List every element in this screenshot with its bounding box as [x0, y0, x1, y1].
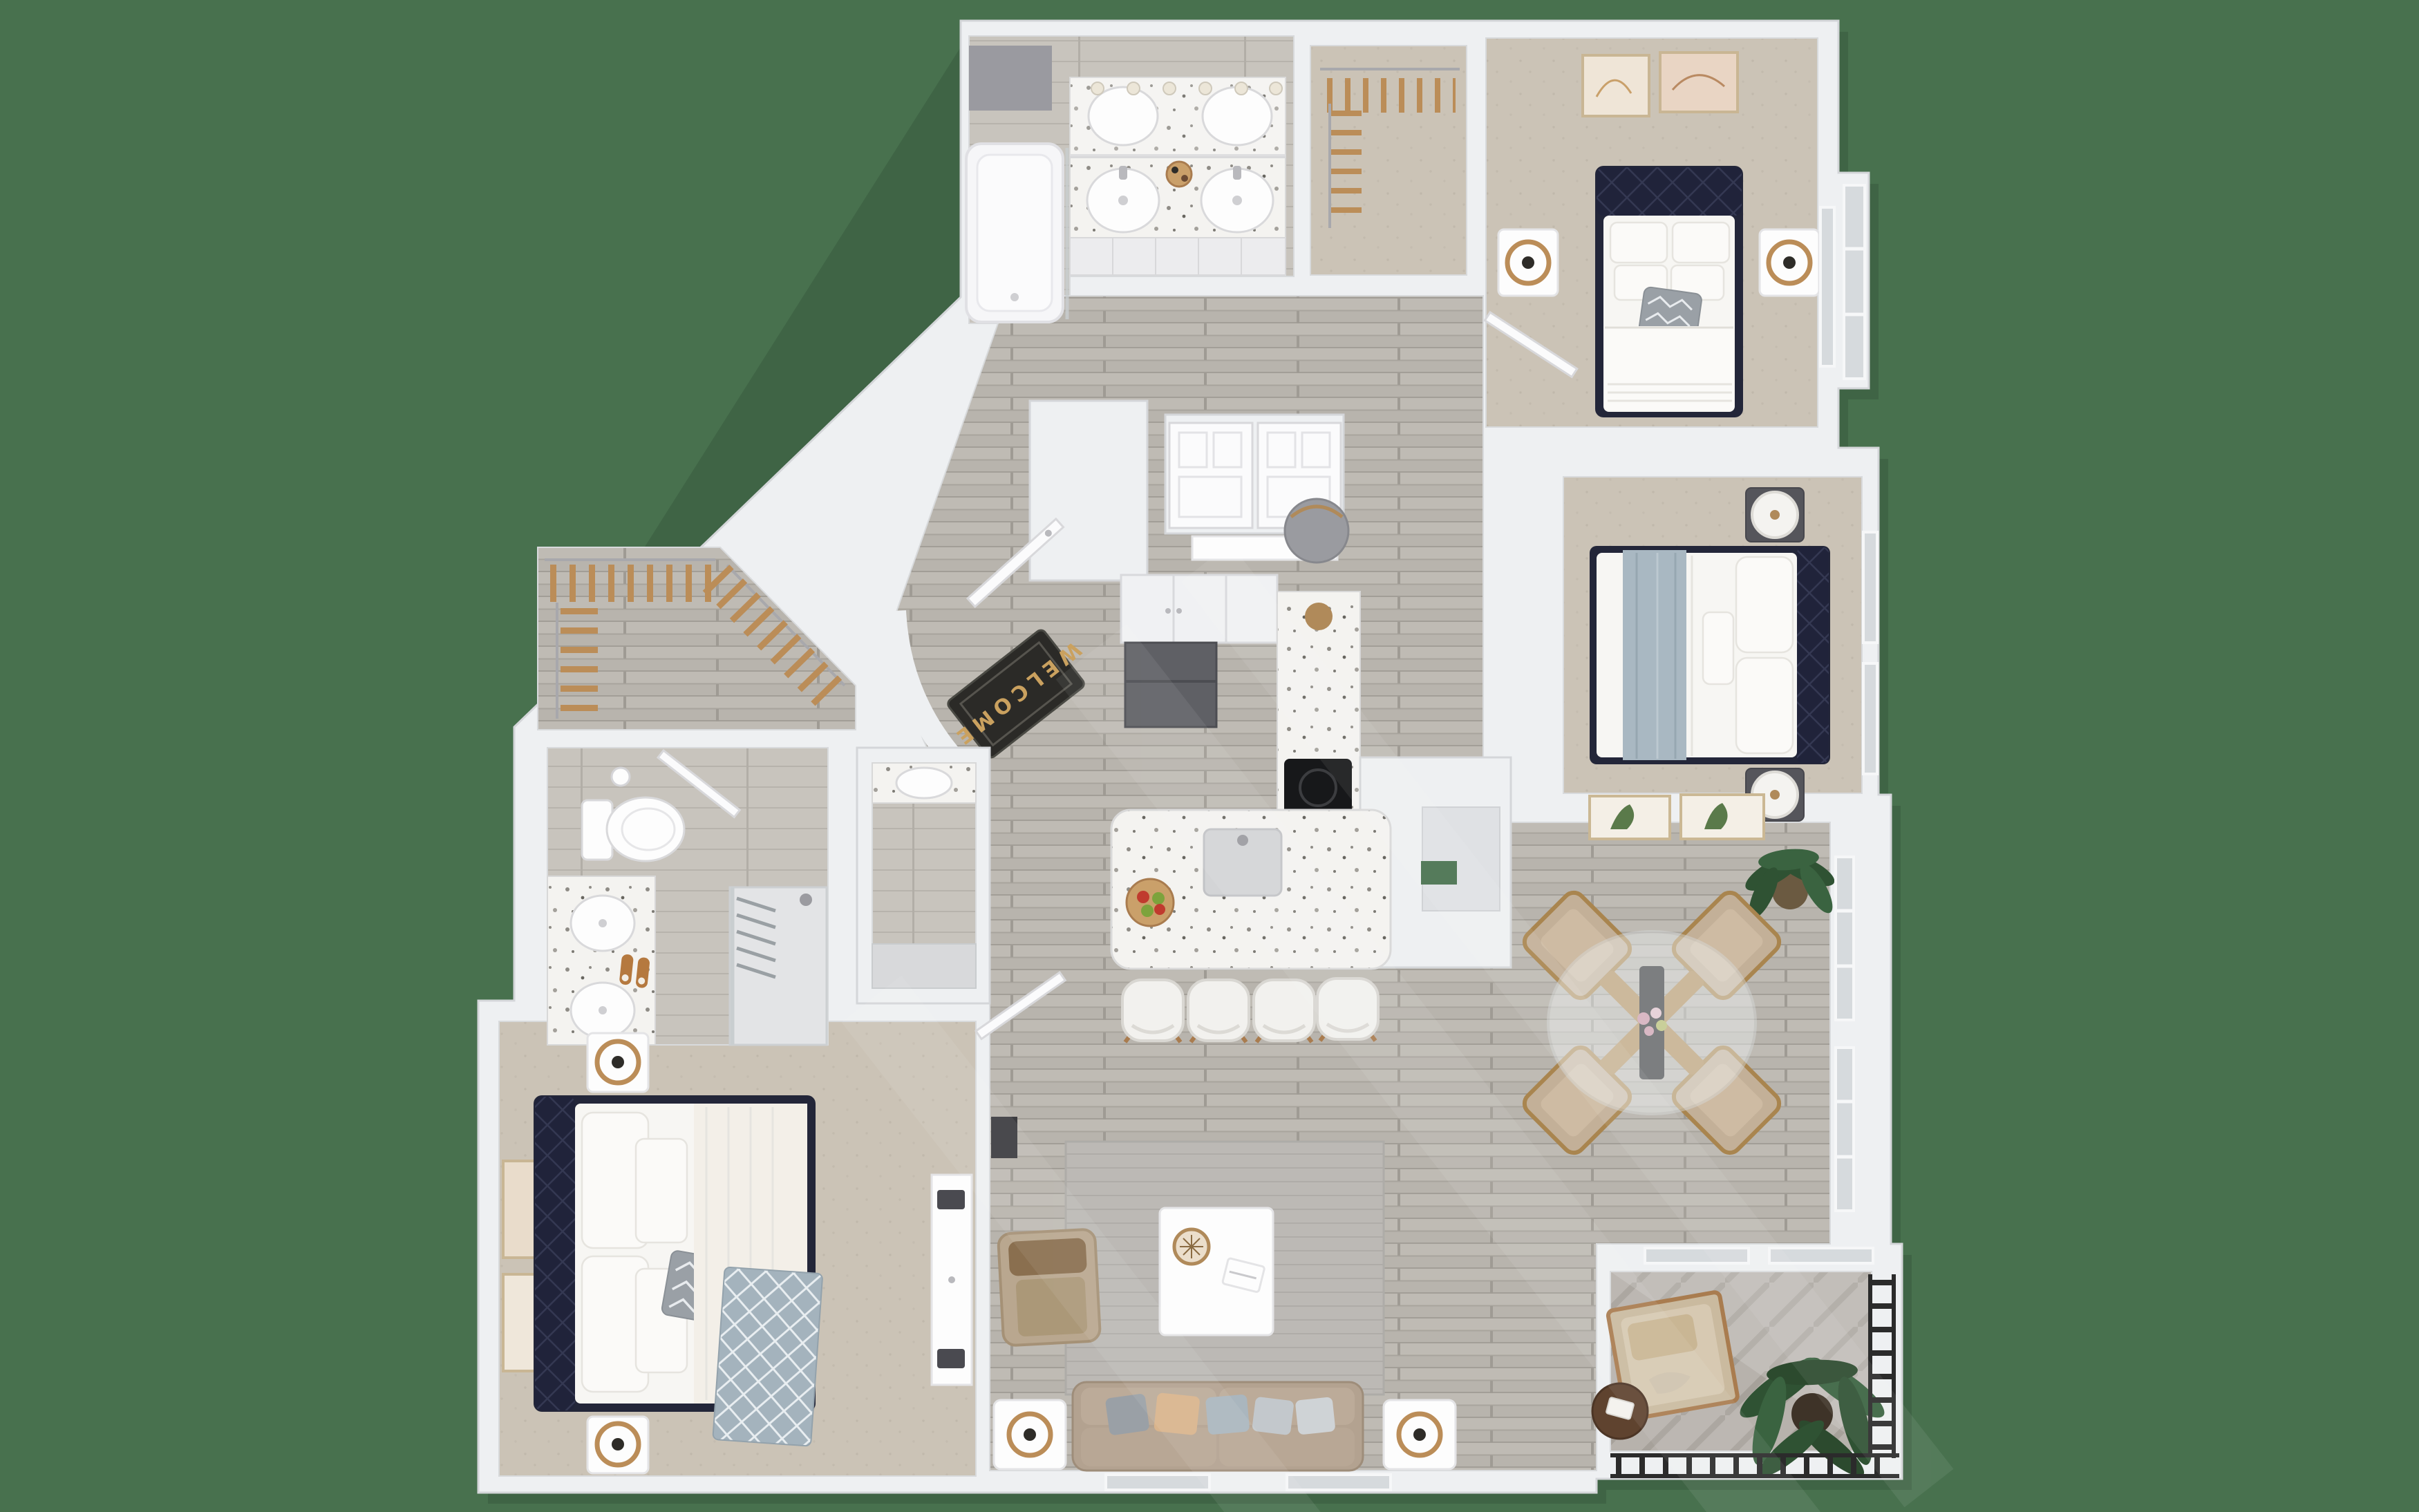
- tufted-headboard: [1597, 167, 1742, 216]
- tall-window: [1836, 857, 1854, 1020]
- wood-bowl: [1305, 603, 1333, 630]
- utility-volume: [1030, 401, 1147, 580]
- sofa-pillow-white: [1295, 1397, 1336, 1435]
- double-vanity: [1070, 77, 1286, 275]
- window: [1863, 663, 1877, 774]
- powder-shower: [872, 944, 976, 988]
- bed: [534, 1095, 822, 1446]
- bed: [1590, 546, 1830, 764]
- shower-head: [800, 894, 812, 906]
- powder-sink: [896, 768, 952, 798]
- art-frame: [1583, 55, 1649, 116]
- gold-tray: [1167, 162, 1192, 187]
- window: [1820, 207, 1834, 366]
- dresser: [932, 1175, 972, 1385]
- geometric-throw: [713, 1267, 822, 1446]
- sofa-pillow-light: [1252, 1397, 1295, 1435]
- gray-chair: [1285, 499, 1348, 563]
- linen-niche: [969, 46, 1052, 111]
- vanity: [547, 876, 655, 1045]
- floor-plan-render: { "scene": { "kind": "3d-floor-plan-top-…: [0, 0, 2419, 1512]
- duvet: [1605, 326, 1733, 410]
- art-frame: [1660, 53, 1738, 112]
- bathtub: [966, 144, 1063, 322]
- toilet-paper: [612, 768, 630, 786]
- window: [1863, 532, 1877, 643]
- bed: [1595, 166, 1743, 417]
- glass-door-panel: [1106, 1475, 1209, 1490]
- bay-window: [1844, 185, 1865, 379]
- glass-door-panel: [1287, 1475, 1391, 1490]
- blue-throw: [1623, 550, 1686, 760]
- vanity-cabinets: [1070, 238, 1286, 275]
- tufted-headboard: [535, 1097, 575, 1410]
- headboard: [1797, 547, 1829, 763]
- room-powder: [857, 748, 990, 1003]
- closet-top-floor: [1310, 46, 1467, 275]
- tall-window: [1836, 1048, 1854, 1211]
- shower: [730, 887, 827, 1045]
- fruit-bowl: [1127, 879, 1174, 926]
- toilet: [582, 797, 684, 861]
- coffee-table: [1160, 1208, 1273, 1335]
- lumbar-pillow: [1703, 612, 1733, 684]
